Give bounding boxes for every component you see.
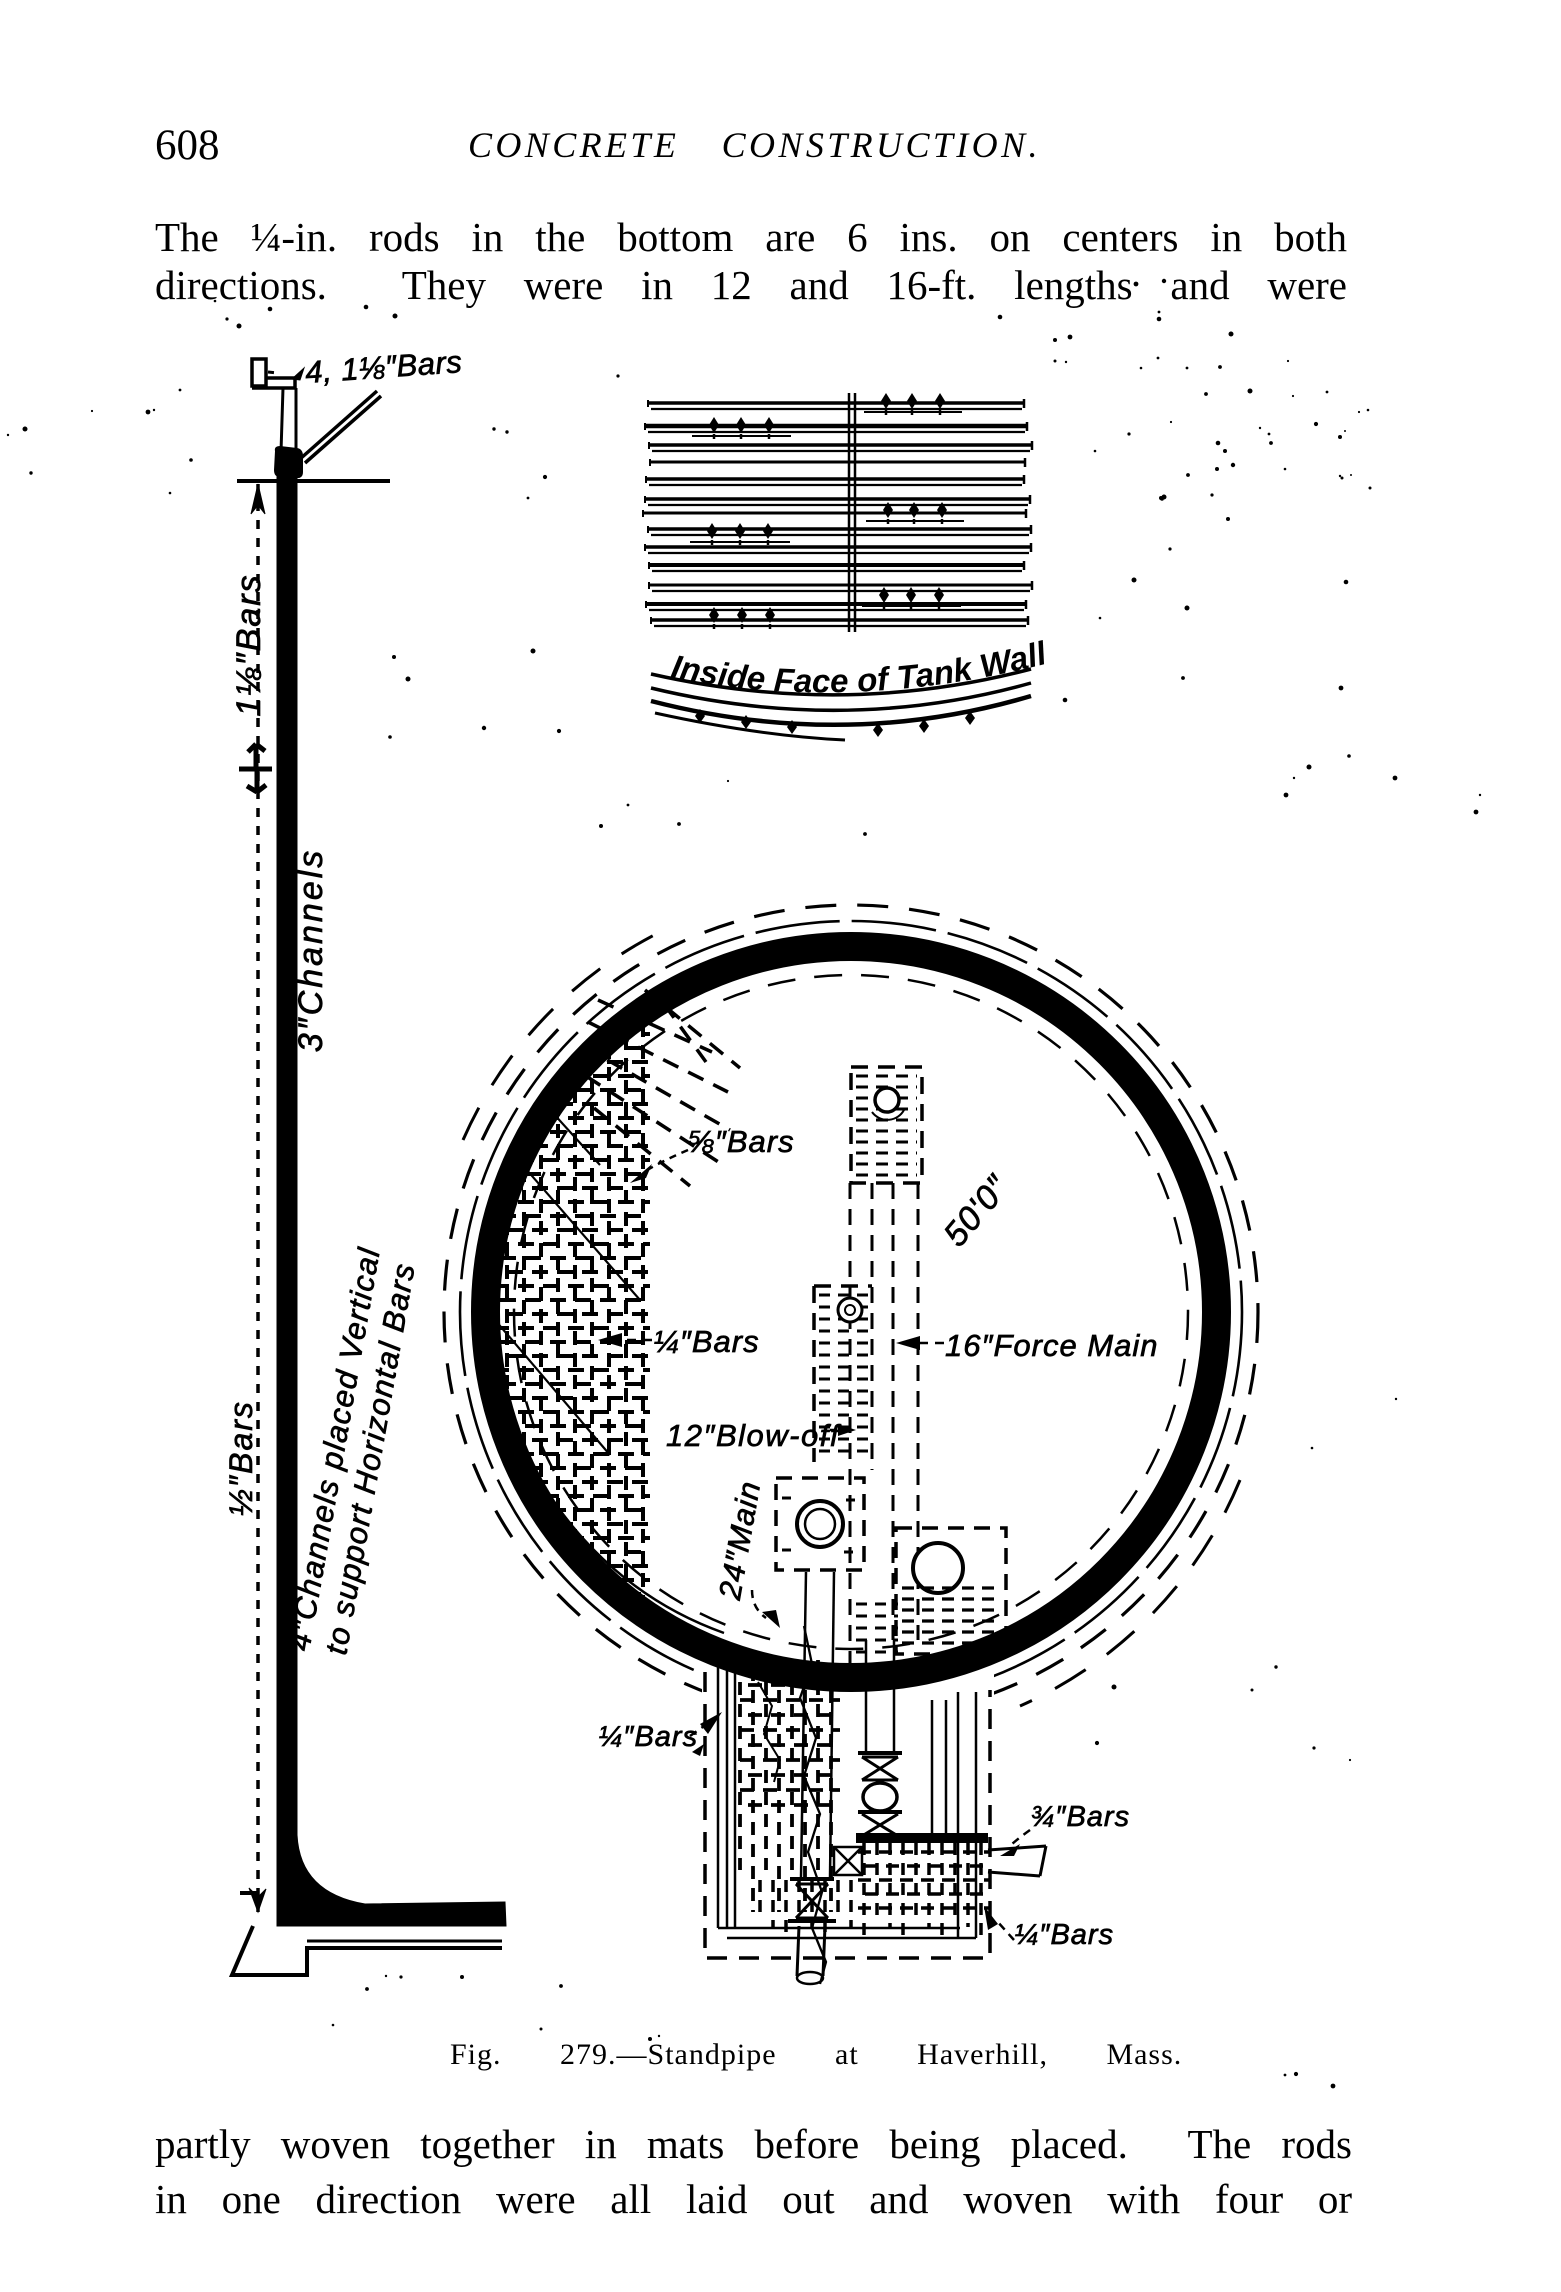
svg-text:½″Bars: ½″Bars xyxy=(223,1400,259,1516)
svg-text:¼″Bars: ¼″Bars xyxy=(598,1721,698,1753)
svg-text:4, 1⅛″Bars: 4, 1⅛″Bars xyxy=(304,344,463,390)
svg-text:¾″Bars: ¾″Bars xyxy=(1030,1801,1130,1833)
svg-text:¼″Bars: ¼″Bars xyxy=(1014,1919,1114,1951)
svg-text:16″Force Main: 16″Force Main xyxy=(945,1328,1159,1363)
svg-text:Inside Face of Tank Wall: Inside Face of Tank Wall xyxy=(669,634,1051,700)
svg-text:1⅛″Bars: 1⅛″Bars xyxy=(230,573,268,716)
svg-text:⅝″Bars: ⅝″Bars xyxy=(688,1124,795,1159)
svg-text:24″Main: 24″Main xyxy=(712,1478,767,1603)
svg-text:3″Channels: 3″Channels xyxy=(292,848,330,1053)
svg-text:50'0″: 50'0″ xyxy=(936,1168,1017,1254)
svg-text:¼″Bars: ¼″Bars xyxy=(653,1324,760,1359)
